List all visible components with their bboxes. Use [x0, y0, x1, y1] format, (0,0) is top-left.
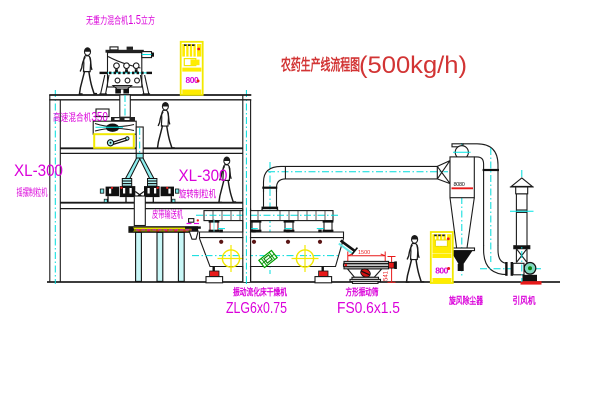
svg-text:FS0.6x1.5: FS0.6x1.5: [337, 300, 400, 317]
svg-text:旋风除尘器: 旋风除尘器: [448, 295, 483, 307]
svg-text:8080: 8080: [454, 182, 465, 188]
svg-text:XL-300: XL-300: [14, 161, 63, 180]
svg-text:摇摆制粒机: 摇摆制粒机: [17, 186, 48, 199]
svg-text:引风机: 引风机: [513, 295, 536, 307]
svg-text:800: 800: [435, 266, 448, 276]
svg-text:振动流化床干燥机: 振动流化床干燥机: [233, 287, 287, 299]
svg-text:XL-300: XL-300: [179, 166, 228, 185]
svg-text:ZLG6x0.75: ZLG6x0.75: [226, 300, 287, 317]
svg-text:1500: 1500: [358, 250, 370, 256]
svg-text:(500kg/h): (500kg/h): [359, 52, 467, 79]
svg-text:皮带输送机: 皮带输送机: [152, 208, 183, 221]
svg-text:旋转制粒机: 旋转制粒机: [179, 188, 216, 201]
svg-text:541: 541: [384, 270, 390, 281]
svg-text:方形振动筛: 方形振动筛: [346, 287, 379, 299]
svg-text:农药生产线流程图: 农药生产线流程图: [280, 55, 360, 74]
